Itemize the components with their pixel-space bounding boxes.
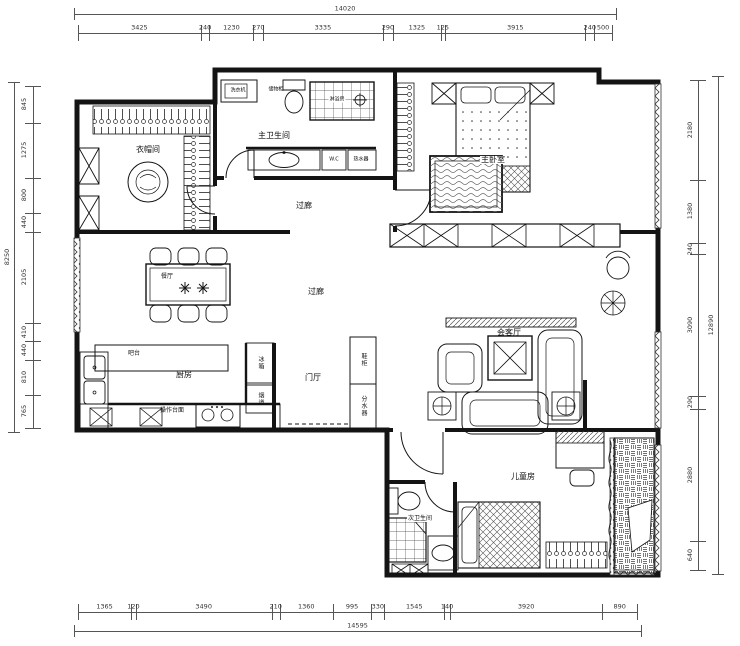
- cloakroom-chair: [128, 162, 168, 202]
- dim-segment-label: 1230: [223, 25, 240, 32]
- dim-segment-label: 1545: [406, 604, 423, 611]
- bedroom-rug: [430, 156, 502, 212]
- window-right-balcony: [655, 445, 661, 571]
- door-entry: [401, 432, 443, 474]
- dim-segment-label: 1275: [21, 142, 28, 159]
- dim-segment-label: 2105: [21, 269, 28, 286]
- dim-total-label: 12890: [708, 315, 715, 336]
- toilet2-tank: [389, 488, 398, 514]
- kitchen-floor-drains: [90, 408, 162, 426]
- dim-segment-label: 240: [199, 25, 211, 32]
- dim-segment-label: 125: [437, 25, 449, 32]
- dim-tick: [690, 180, 706, 181]
- table-flower-icon: [179, 282, 191, 294]
- floor-plan-drawing: [0, 0, 740, 646]
- dim-segment-label: 845: [21, 98, 28, 110]
- dim-segment-label: 330: [372, 604, 384, 611]
- bedroom-wardrobe: [397, 83, 414, 171]
- fixture-label-wc: W.C: [329, 158, 338, 163]
- toilet2-bowl: [398, 492, 420, 510]
- room-label-master-bedroom: 主卧室: [480, 156, 506, 164]
- room-label-living: 会客厅: [497, 329, 521, 337]
- window-right-bedroom: [655, 84, 661, 228]
- room-label-kitchen: 厨房: [176, 371, 192, 379]
- dim-tick: [78, 25, 79, 41]
- fixture-label-fridge: 冰箱: [257, 356, 263, 370]
- fixture-label-flue: 烟道: [257, 392, 263, 406]
- dim-tick: [712, 574, 724, 575]
- dim-outer-line-bottom: [74, 631, 641, 632]
- dim-segment-label: 3915: [507, 25, 524, 32]
- dim-tick: [690, 570, 706, 571]
- dim-total-label: 14020: [335, 6, 356, 13]
- dim-tick: [690, 80, 706, 81]
- dim-segment-label: 240: [584, 25, 596, 32]
- fixture-label-shoe: 鞋柜: [360, 353, 366, 367]
- dim-segment-label: 140: [441, 604, 453, 611]
- dim-segment-label: 270: [252, 25, 264, 32]
- floor-plan-canvas: 衣帽间 主卫生间 过廊 主卧室 过廊 餐厅 吧台 厨房 操作台面 门厅 会客厅 …: [0, 0, 740, 646]
- dim-tick: [602, 604, 603, 620]
- closet-row: [390, 224, 620, 247]
- dim-tick: [74, 625, 75, 637]
- dim-segment-label: 410: [21, 326, 28, 338]
- dim-segment-label: 2180: [687, 122, 694, 139]
- dim-segment-label: 765: [21, 405, 28, 417]
- door-second-bath: [425, 482, 455, 512]
- fixture-label-heater: 热水器: [353, 158, 368, 163]
- room-label-second-bath: 次卫生间: [407, 516, 433, 522]
- dim-tick: [712, 76, 724, 77]
- dim-total-label: 14595: [347, 623, 368, 630]
- dim-segment-label: 995: [346, 604, 358, 611]
- dim-segment-label: 440: [21, 216, 28, 228]
- lounge-table: [607, 257, 629, 279]
- dim-segment-label: 2880: [687, 466, 694, 483]
- cloakroom-rack-right: [184, 136, 210, 230]
- dim-segment-label: 3425: [131, 25, 148, 32]
- armchair: [438, 344, 482, 392]
- dim-outer-line-right: [718, 76, 719, 574]
- room-label-master-bath: 主卫生间: [258, 132, 290, 140]
- dim-tick: [8, 82, 20, 83]
- table-flower-icon: [197, 282, 209, 294]
- dim-line-bottom: [78, 612, 637, 613]
- dim-segment-label: 890: [613, 604, 625, 611]
- dim-segment-label: 440: [21, 344, 28, 356]
- cloakroom-cabinets: [79, 148, 99, 230]
- room-label-cloakroom: 衣帽间: [136, 146, 160, 154]
- dim-tick: [25, 86, 41, 87]
- dim-tick: [78, 604, 79, 620]
- dim-tick: [25, 123, 41, 124]
- room-label-corridor-main: 过廊: [308, 288, 324, 296]
- dim-tick: [74, 8, 75, 20]
- dim-tick: [384, 604, 385, 620]
- shower2: [388, 518, 426, 562]
- dim-segment-label: 1360: [298, 604, 315, 611]
- sofa-two-seat: [462, 392, 548, 434]
- dim-segment-label: 3335: [315, 25, 332, 32]
- dim-segment-label: 800: [21, 189, 28, 201]
- dim-tick: [25, 232, 41, 233]
- window-left-dining: [74, 238, 80, 332]
- room-label-bar: 吧台: [128, 351, 140, 357]
- dim-segment-label: 3920: [518, 604, 535, 611]
- dim-tick: [8, 432, 20, 433]
- dim-segment-label: 1380: [687, 203, 694, 220]
- fixture-label-shower: 淋浴房: [328, 98, 345, 103]
- dim-tick: [25, 323, 41, 324]
- dim-tick: [690, 541, 706, 542]
- bar-counter: [95, 345, 228, 371]
- room-label-kids: 儿童房: [511, 473, 535, 481]
- room-label-dining: 餐厅: [161, 274, 173, 280]
- dim-tick: [333, 604, 334, 620]
- dim-segment-label: 810: [21, 371, 28, 383]
- dim-tick: [25, 360, 41, 361]
- dim-tick: [690, 409, 706, 410]
- sofa-long: [538, 330, 582, 424]
- dim-tick: [637, 604, 638, 620]
- dim-tick: [25, 428, 41, 429]
- plant-stand: [428, 392, 456, 420]
- fixture-label-washer: 洗衣机: [230, 89, 245, 94]
- dim-segment-label: 120: [127, 604, 139, 611]
- door-master-bedroom: [395, 190, 431, 226]
- dim-line-top: [78, 33, 612, 34]
- dim-segment-label: 210: [269, 604, 281, 611]
- tv-wall: [446, 318, 576, 327]
- cloakroom-rack-top: [93, 106, 210, 134]
- dim-tick: [25, 178, 41, 179]
- dim-segment-label: 640: [687, 549, 694, 561]
- fixture-label-storage: 储物柜: [268, 88, 283, 93]
- dim-segment-label: 290: [382, 25, 394, 32]
- dim-segment-label: 3090: [687, 316, 694, 333]
- dim-segment-label: 1325: [409, 25, 426, 32]
- dim-outer-line-top: [74, 14, 616, 15]
- dim-tick: [25, 341, 41, 342]
- bedside-cabinets: [432, 83, 554, 104]
- dim-tick: [25, 213, 41, 214]
- dim-segment-label: 1365: [96, 604, 113, 611]
- dim-tick: [641, 625, 642, 637]
- kids-closet-rack: [546, 542, 607, 568]
- fixture-label-manifold: 分水器: [360, 396, 366, 417]
- dim-segment-label: 290: [687, 396, 694, 408]
- toilet-master: [283, 80, 305, 90]
- kids-chair: [570, 470, 594, 486]
- window-right-living: [655, 332, 661, 428]
- dim-outer-line-left: [14, 82, 15, 432]
- dim-segment-label: 3490: [195, 604, 212, 611]
- room-label-foyer: 门厅: [305, 374, 321, 382]
- room-label-counter: 操作台面: [160, 408, 184, 414]
- dim-segment-label: 500: [597, 25, 609, 32]
- dim-line-right: [698, 80, 699, 570]
- dim-tick: [25, 395, 41, 396]
- dim-tick: [616, 8, 617, 20]
- vanity-master: [248, 150, 320, 170]
- dim-segment-label: 240: [687, 242, 694, 254]
- dim-line-left: [33, 86, 34, 428]
- dim-tick: [612, 25, 613, 41]
- room-label-corridor-top: 过廊: [296, 202, 312, 210]
- dim-total-label: 8250: [4, 249, 11, 266]
- door-master-bath: [226, 150, 254, 178]
- plant-icon: [601, 291, 625, 315]
